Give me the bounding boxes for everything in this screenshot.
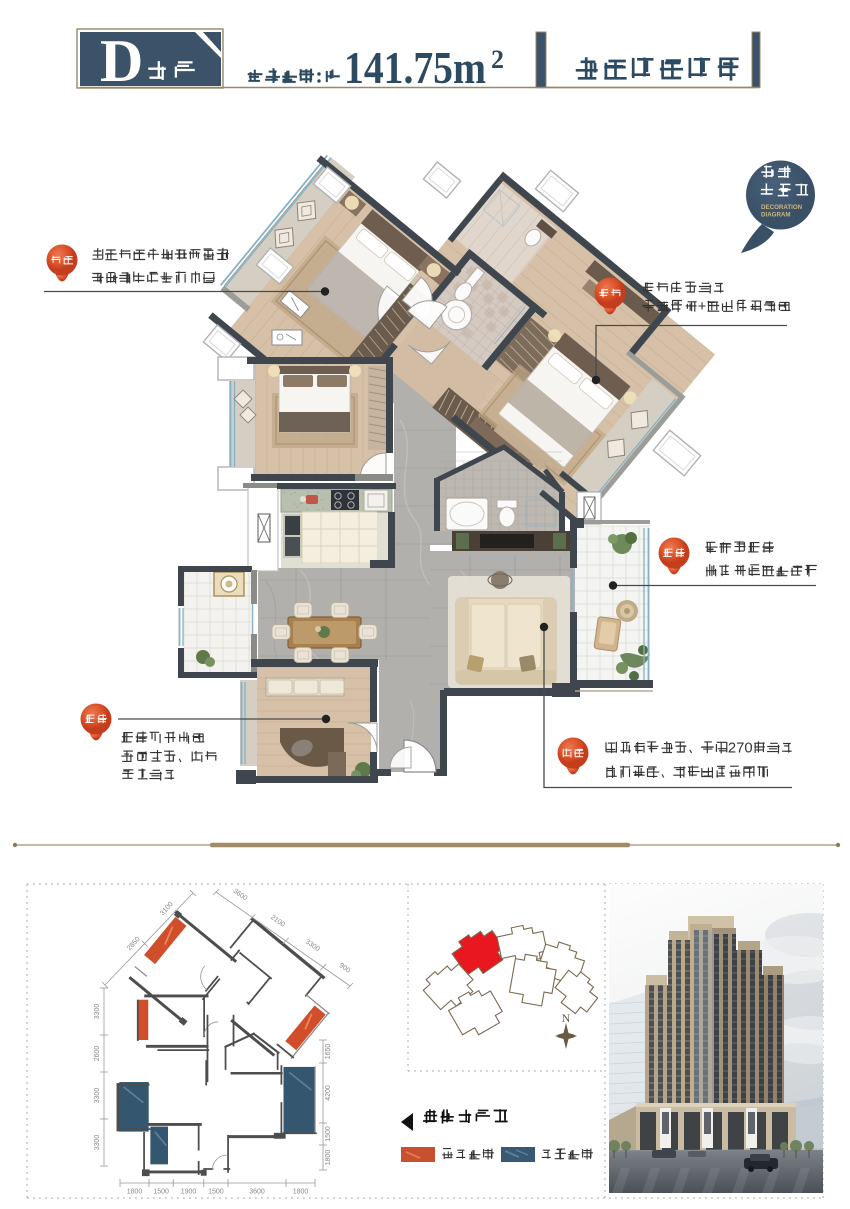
svg-text:1650: 1650: [325, 1044, 332, 1060]
svg-text:1800: 1800: [293, 1189, 309, 1196]
svg-text:3600: 3600: [232, 888, 249, 903]
svg-text:DECORATION: DECORATION: [761, 204, 803, 211]
svg-text:141.75m: 141.75m: [344, 43, 486, 93]
svg-text:2: 2: [491, 45, 504, 74]
svg-text:1800: 1800: [325, 1150, 332, 1166]
svg-text:3300: 3300: [304, 938, 321, 953]
svg-text:N: N: [562, 1011, 571, 1025]
svg-text:2850: 2850: [126, 936, 142, 952]
svg-text:4200: 4200: [325, 1085, 332, 1101]
svg-text:2600: 2600: [94, 1046, 101, 1062]
svg-text:3300: 3300: [94, 1004, 101, 1020]
svg-text:1500: 1500: [208, 1189, 224, 1196]
svg-text:+: +: [698, 299, 707, 315]
svg-text:1800: 1800: [127, 1189, 143, 1196]
svg-text:D: D: [100, 28, 143, 94]
svg-text:3300: 3300: [94, 1135, 101, 1151]
svg-text:1900: 1900: [181, 1189, 197, 1196]
svg-text:DIAGRAM: DIAGRAM: [761, 212, 791, 219]
svg-text:900: 900: [338, 962, 352, 974]
svg-text:2100: 2100: [269, 914, 286, 929]
svg-text:1500: 1500: [153, 1189, 169, 1196]
svg-text:3300: 3300: [94, 1088, 101, 1104]
svg-text:3600: 3600: [249, 1189, 265, 1196]
svg-text:1500: 1500: [325, 1126, 332, 1142]
svg-text:270: 270: [728, 741, 753, 757]
